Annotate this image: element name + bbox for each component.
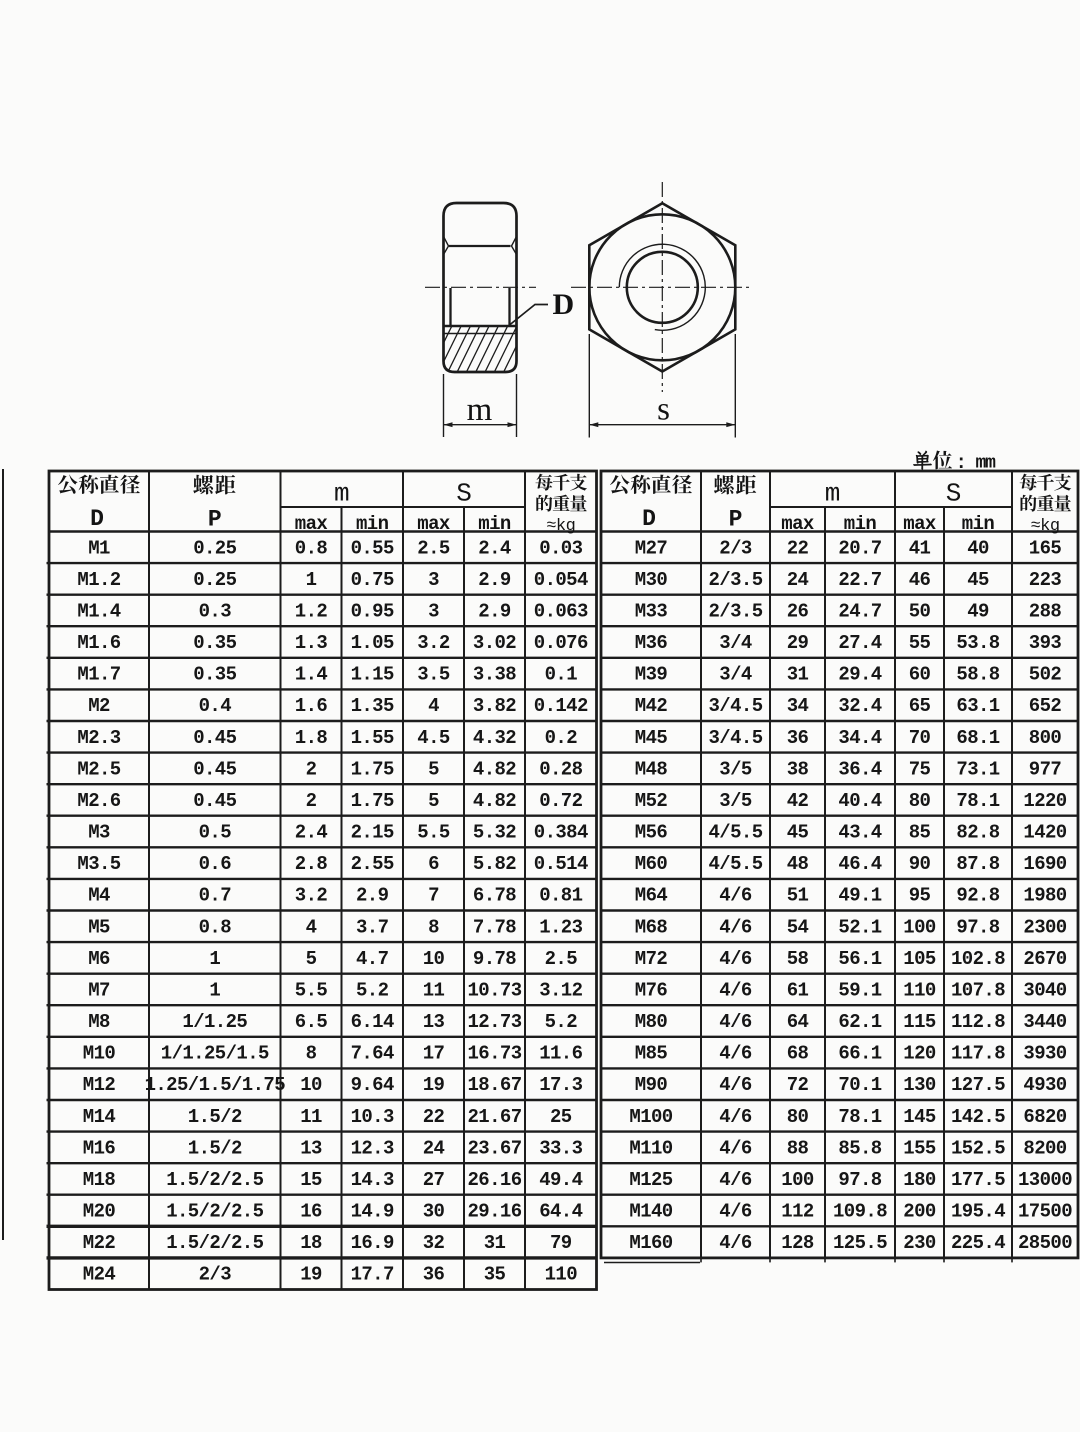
svg-text:35: 35 xyxy=(484,1264,506,1286)
svg-text:200: 200 xyxy=(903,1201,936,1223)
svg-text:8: 8 xyxy=(306,1043,317,1065)
svg-text:17.7: 17.7 xyxy=(351,1264,394,1286)
svg-text:49.4: 49.4 xyxy=(539,1169,582,1191)
svg-text:M39: M39 xyxy=(635,664,668,686)
svg-text:31: 31 xyxy=(787,664,809,686)
svg-text:46.4: 46.4 xyxy=(838,853,881,875)
svg-text:M110: M110 xyxy=(629,1137,672,1159)
svg-text:3/4.5: 3/4.5 xyxy=(708,727,762,749)
svg-text:M52: M52 xyxy=(635,790,668,812)
svg-text:0.35: 0.35 xyxy=(193,664,236,686)
svg-text:4/6: 4/6 xyxy=(719,916,752,938)
svg-text:223: 223 xyxy=(1029,569,1062,591)
svg-text:4/6: 4/6 xyxy=(719,885,752,907)
svg-text:0.2: 0.2 xyxy=(545,727,578,749)
svg-text:M60: M60 xyxy=(635,853,668,875)
svg-text:2.5: 2.5 xyxy=(545,948,578,970)
svg-text:10: 10 xyxy=(423,948,445,970)
svg-text:11.6: 11.6 xyxy=(539,1043,582,1065)
svg-text:5: 5 xyxy=(428,758,439,780)
svg-text:117.8: 117.8 xyxy=(951,1043,1005,1065)
svg-text:4.7: 4.7 xyxy=(356,948,389,970)
svg-text:13000: 13000 xyxy=(1018,1169,1072,1191)
svg-text:4.5: 4.5 xyxy=(417,727,450,749)
svg-text:1.35: 1.35 xyxy=(351,695,394,717)
svg-text:46: 46 xyxy=(909,569,931,591)
svg-text:66.1: 66.1 xyxy=(838,1043,881,1065)
svg-text:393: 393 xyxy=(1029,632,1062,654)
svg-text:max: max xyxy=(417,513,450,535)
svg-text:M10: M10 xyxy=(83,1043,116,1065)
svg-text:D: D xyxy=(642,506,656,532)
svg-text:288: 288 xyxy=(1029,601,1062,623)
svg-text:2.4: 2.4 xyxy=(295,822,328,844)
svg-text:43.4: 43.4 xyxy=(838,822,881,844)
svg-text:5.5: 5.5 xyxy=(295,980,328,1002)
svg-text:M85: M85 xyxy=(635,1043,668,1065)
svg-text:1: 1 xyxy=(209,980,220,1002)
svg-text:M125: M125 xyxy=(629,1169,672,1191)
svg-text:8: 8 xyxy=(428,916,439,938)
svg-text:49: 49 xyxy=(967,601,989,623)
svg-text:97.8: 97.8 xyxy=(838,1169,881,1191)
svg-text:45: 45 xyxy=(967,569,989,591)
svg-text:65: 65 xyxy=(909,695,931,717)
svg-text:109.8: 109.8 xyxy=(833,1201,887,1223)
svg-text:4930: 4930 xyxy=(1023,1074,1066,1096)
svg-text:S: S xyxy=(456,478,472,508)
svg-text:24: 24 xyxy=(787,569,809,591)
svg-text:90: 90 xyxy=(909,853,931,875)
svg-text:2/3.5: 2/3.5 xyxy=(708,601,762,623)
svg-text:120: 120 xyxy=(903,1043,936,1065)
svg-text:4.82: 4.82 xyxy=(473,758,516,780)
svg-text:M2.3: M2.3 xyxy=(77,727,120,749)
svg-text:M100: M100 xyxy=(629,1106,672,1128)
svg-text:2: 2 xyxy=(306,758,317,780)
svg-text:142.5: 142.5 xyxy=(951,1106,1005,1128)
svg-text:36: 36 xyxy=(787,727,809,749)
svg-text:s: s xyxy=(657,392,670,428)
svg-text:M36: M36 xyxy=(635,632,668,654)
svg-text:1.5/2: 1.5/2 xyxy=(188,1106,242,1128)
svg-text:D: D xyxy=(90,506,104,532)
svg-text:0.6: 0.6 xyxy=(199,853,232,875)
svg-text:16.73: 16.73 xyxy=(467,1043,521,1065)
svg-text:2/3.5: 2/3.5 xyxy=(708,569,762,591)
svg-text:1.05: 1.05 xyxy=(351,632,394,654)
svg-text:1/1.25/1.5: 1/1.25/1.5 xyxy=(161,1043,269,1065)
svg-text:145: 145 xyxy=(903,1106,936,1128)
svg-text:1.5/2: 1.5/2 xyxy=(188,1137,242,1159)
svg-text:17.3: 17.3 xyxy=(539,1074,582,1096)
svg-text:125.5: 125.5 xyxy=(833,1232,887,1254)
svg-text:64.4: 64.4 xyxy=(539,1201,582,1223)
svg-text:M64: M64 xyxy=(635,885,668,907)
svg-text:48: 48 xyxy=(787,853,809,875)
svg-text:22: 22 xyxy=(787,537,809,559)
svg-text:P: P xyxy=(208,507,222,533)
svg-text:11: 11 xyxy=(300,1106,322,1128)
svg-text:165: 165 xyxy=(1029,537,1062,559)
svg-text:min: min xyxy=(356,513,389,535)
svg-text:1.55: 1.55 xyxy=(351,727,394,749)
svg-text:10: 10 xyxy=(300,1074,322,1096)
svg-text:88: 88 xyxy=(787,1137,809,1159)
svg-text:1.15: 1.15 xyxy=(351,664,394,686)
svg-text:49.1: 49.1 xyxy=(838,885,881,907)
svg-text:2/3: 2/3 xyxy=(199,1264,232,1286)
svg-text:M22: M22 xyxy=(83,1232,116,1254)
svg-text:31: 31 xyxy=(484,1232,506,1254)
svg-text:21.67: 21.67 xyxy=(467,1106,521,1128)
svg-text:3.02: 3.02 xyxy=(473,632,516,654)
svg-text:M6: M6 xyxy=(88,948,110,970)
svg-text:D: D xyxy=(553,288,575,321)
svg-text:0.4: 0.4 xyxy=(199,695,232,717)
svg-text:85: 85 xyxy=(909,822,931,844)
svg-text:M33: M33 xyxy=(635,601,668,623)
svg-text:56.1: 56.1 xyxy=(838,948,881,970)
svg-text:102.8: 102.8 xyxy=(951,948,1005,970)
svg-text:max: max xyxy=(781,513,814,535)
svg-text:110: 110 xyxy=(903,980,936,1002)
svg-text:92.8: 92.8 xyxy=(956,885,999,907)
svg-text:M7: M7 xyxy=(88,980,110,1002)
svg-text:2.5: 2.5 xyxy=(417,537,450,559)
svg-text:68: 68 xyxy=(787,1043,809,1065)
svg-text:0.7: 0.7 xyxy=(199,885,232,907)
svg-text:M4: M4 xyxy=(88,885,110,907)
svg-text:115: 115 xyxy=(903,1011,936,1033)
svg-text:0.384: 0.384 xyxy=(534,822,588,844)
svg-text:0.75: 0.75 xyxy=(351,569,394,591)
svg-text:2.9: 2.9 xyxy=(478,601,511,623)
svg-text:25: 25 xyxy=(550,1106,572,1128)
svg-text:36.4: 36.4 xyxy=(838,758,881,780)
svg-text:0.95: 0.95 xyxy=(351,601,394,623)
svg-text:1.5/2/2.5: 1.5/2/2.5 xyxy=(166,1201,263,1223)
svg-text:M2.6: M2.6 xyxy=(77,790,120,812)
svg-text:1.75: 1.75 xyxy=(351,758,394,780)
svg-text:4: 4 xyxy=(428,695,439,717)
svg-text:0.3: 0.3 xyxy=(199,601,232,623)
svg-text:M14: M14 xyxy=(83,1106,116,1128)
svg-text:M30: M30 xyxy=(635,569,668,591)
svg-text:4: 4 xyxy=(306,916,317,938)
svg-text:75: 75 xyxy=(909,758,931,780)
svg-text:max: max xyxy=(903,513,936,535)
svg-text:54: 54 xyxy=(787,916,809,938)
svg-text:M16: M16 xyxy=(83,1137,116,1159)
svg-text:6.5: 6.5 xyxy=(295,1011,328,1033)
svg-text:1.25/1.5/1.75: 1.25/1.5/1.75 xyxy=(145,1074,286,1096)
svg-text:85.8: 85.8 xyxy=(838,1137,881,1159)
svg-text:min: min xyxy=(962,513,995,535)
svg-text:2/3: 2/3 xyxy=(719,537,752,559)
svg-text:≈kg: ≈kg xyxy=(546,517,575,536)
svg-text:13: 13 xyxy=(300,1137,322,1159)
svg-text:64: 64 xyxy=(787,1011,809,1033)
svg-text:min: min xyxy=(478,513,511,535)
svg-text:3930: 3930 xyxy=(1023,1043,1066,1065)
svg-text:M140: M140 xyxy=(629,1201,672,1223)
svg-text:177.5: 177.5 xyxy=(951,1169,1005,1191)
svg-text:40.4: 40.4 xyxy=(838,790,881,812)
svg-text:4/6: 4/6 xyxy=(719,980,752,1002)
svg-text:0.45: 0.45 xyxy=(193,790,236,812)
svg-text:58: 58 xyxy=(787,948,809,970)
svg-text:M18: M18 xyxy=(83,1169,116,1191)
svg-text:4/6: 4/6 xyxy=(719,1232,752,1254)
svg-text:3.5: 3.5 xyxy=(417,664,450,686)
svg-text:16: 16 xyxy=(300,1201,322,1223)
svg-text:0.8: 0.8 xyxy=(199,916,232,938)
svg-text:0.72: 0.72 xyxy=(539,790,582,812)
svg-text:1.6: 1.6 xyxy=(295,695,328,717)
svg-text:27: 27 xyxy=(423,1169,445,1191)
svg-text:4/6: 4/6 xyxy=(719,1074,752,1096)
svg-text:230: 230 xyxy=(903,1232,936,1254)
svg-text:195.4: 195.4 xyxy=(951,1201,1005,1223)
svg-text:M1.4: M1.4 xyxy=(77,601,120,623)
svg-text:0.45: 0.45 xyxy=(193,758,236,780)
svg-text:14.3: 14.3 xyxy=(351,1169,394,1191)
svg-text:m: m xyxy=(825,478,841,508)
svg-text:55: 55 xyxy=(909,632,931,654)
svg-text:5.82: 5.82 xyxy=(473,853,516,875)
svg-text:15: 15 xyxy=(300,1169,322,1191)
svg-text:17500: 17500 xyxy=(1018,1201,1072,1223)
svg-text:12.3: 12.3 xyxy=(351,1137,394,1159)
svg-text:3.2: 3.2 xyxy=(295,885,328,907)
svg-text:5: 5 xyxy=(306,948,317,970)
svg-text:M42: M42 xyxy=(635,695,668,717)
svg-text:78.1: 78.1 xyxy=(956,790,999,812)
svg-text:1/1.25: 1/1.25 xyxy=(182,1011,247,1033)
svg-text:S: S xyxy=(946,478,962,508)
svg-text:9.78: 9.78 xyxy=(473,948,516,970)
svg-text:34: 34 xyxy=(787,695,809,717)
svg-text:30: 30 xyxy=(423,1201,445,1223)
svg-text:52.1: 52.1 xyxy=(838,916,881,938)
svg-text:1.3: 1.3 xyxy=(295,632,328,654)
svg-text:24: 24 xyxy=(423,1137,445,1159)
svg-text:3.7: 3.7 xyxy=(356,916,389,938)
svg-text:M8: M8 xyxy=(88,1011,110,1033)
svg-text:14.9: 14.9 xyxy=(351,1201,394,1223)
svg-text:32.4: 32.4 xyxy=(838,695,881,717)
svg-text:1: 1 xyxy=(306,569,317,591)
svg-text:0.25: 0.25 xyxy=(193,569,236,591)
svg-text:M90: M90 xyxy=(635,1074,668,1096)
svg-text:20.7: 20.7 xyxy=(838,537,881,559)
svg-text:2.4: 2.4 xyxy=(478,537,511,559)
svg-text:59.1: 59.1 xyxy=(838,980,881,1002)
svg-text:1220: 1220 xyxy=(1023,790,1066,812)
svg-text:50: 50 xyxy=(909,601,931,623)
svg-text:1.5/2/2.5: 1.5/2/2.5 xyxy=(166,1232,263,1254)
svg-text:3.82: 3.82 xyxy=(473,695,516,717)
svg-text:82.8: 82.8 xyxy=(956,822,999,844)
svg-text:0.076: 0.076 xyxy=(534,632,588,654)
svg-text:53.8: 53.8 xyxy=(956,632,999,654)
svg-text:M12: M12 xyxy=(83,1074,116,1096)
svg-text:38: 38 xyxy=(787,758,809,780)
svg-text:3440: 3440 xyxy=(1023,1011,1066,1033)
svg-text:3: 3 xyxy=(428,601,439,623)
svg-text:12.73: 12.73 xyxy=(467,1011,521,1033)
svg-text:26.16: 26.16 xyxy=(467,1169,521,1191)
svg-text:5.2: 5.2 xyxy=(545,1011,578,1033)
svg-text:63.1: 63.1 xyxy=(956,695,999,717)
svg-text:36: 36 xyxy=(423,1264,445,1286)
svg-text:max: max xyxy=(295,513,328,535)
svg-text:18: 18 xyxy=(300,1232,322,1254)
svg-text:M160: M160 xyxy=(629,1232,672,1254)
svg-text:51: 51 xyxy=(787,885,809,907)
svg-text:0.35: 0.35 xyxy=(193,632,236,654)
svg-text:M56: M56 xyxy=(635,822,668,844)
svg-text:m: m xyxy=(467,392,493,428)
svg-text:M27: M27 xyxy=(635,537,668,559)
svg-text:80: 80 xyxy=(787,1106,809,1128)
svg-text:≈kg: ≈kg xyxy=(1030,517,1059,536)
svg-text:2.9: 2.9 xyxy=(356,885,389,907)
svg-text:29.16: 29.16 xyxy=(467,1201,521,1223)
svg-text:1.23: 1.23 xyxy=(539,916,582,938)
svg-text:1.2: 1.2 xyxy=(295,601,328,623)
svg-text:40: 40 xyxy=(967,537,989,559)
svg-text:M20: M20 xyxy=(83,1201,116,1223)
svg-text:6.14: 6.14 xyxy=(351,1011,394,1033)
svg-text:4.32: 4.32 xyxy=(473,727,516,749)
svg-text:0.1: 0.1 xyxy=(545,664,578,686)
svg-text:1.5/2/2.5: 1.5/2/2.5 xyxy=(166,1169,263,1191)
svg-text:7.64: 7.64 xyxy=(351,1043,394,1065)
svg-text:2.8: 2.8 xyxy=(295,853,328,875)
svg-text:130: 130 xyxy=(903,1074,936,1096)
svg-text:29: 29 xyxy=(787,632,809,654)
svg-text:79: 79 xyxy=(550,1232,572,1254)
svg-text:502: 502 xyxy=(1029,664,1062,686)
svg-text:4.82: 4.82 xyxy=(473,790,516,812)
svg-text:800: 800 xyxy=(1029,727,1062,749)
svg-text:155: 155 xyxy=(903,1137,936,1159)
svg-text:6820: 6820 xyxy=(1023,1106,1066,1128)
svg-text:41: 41 xyxy=(909,537,931,559)
svg-text:19: 19 xyxy=(423,1074,445,1096)
svg-text:M5: M5 xyxy=(88,916,110,938)
svg-text:M3.5: M3.5 xyxy=(77,853,120,875)
svg-text:61: 61 xyxy=(787,980,809,1002)
svg-text:M2.5: M2.5 xyxy=(77,758,120,780)
svg-text:0.063: 0.063 xyxy=(534,601,588,623)
svg-text:1980: 1980 xyxy=(1023,885,1066,907)
svg-text:0.25: 0.25 xyxy=(193,537,236,559)
svg-text:33.3: 33.3 xyxy=(539,1137,582,1159)
svg-text:652: 652 xyxy=(1029,695,1062,717)
svg-text:8200: 8200 xyxy=(1023,1137,1066,1159)
svg-text:60: 60 xyxy=(909,664,931,686)
svg-text:5.5: 5.5 xyxy=(417,822,450,844)
svg-text:1420: 1420 xyxy=(1023,822,1066,844)
svg-text:100: 100 xyxy=(781,1169,814,1191)
svg-text:0.81: 0.81 xyxy=(539,885,582,907)
svg-text:128: 128 xyxy=(781,1232,814,1254)
svg-text:3.12: 3.12 xyxy=(539,980,582,1002)
svg-text:0.514: 0.514 xyxy=(534,853,588,875)
svg-text:62.1: 62.1 xyxy=(838,1011,881,1033)
svg-text:M80: M80 xyxy=(635,1011,668,1033)
svg-text:3.38: 3.38 xyxy=(473,664,516,686)
svg-text:M1: M1 xyxy=(88,537,110,559)
svg-text:10.3: 10.3 xyxy=(351,1106,394,1128)
svg-text:22: 22 xyxy=(423,1106,445,1128)
svg-text:112: 112 xyxy=(781,1201,814,1223)
svg-text:0.5: 0.5 xyxy=(199,822,232,844)
svg-text:M76: M76 xyxy=(635,980,668,1002)
svg-text:M24: M24 xyxy=(83,1264,116,1286)
svg-text:13: 13 xyxy=(423,1011,445,1033)
svg-text:70.1: 70.1 xyxy=(838,1074,881,1096)
svg-text:3/4.5: 3/4.5 xyxy=(708,695,762,717)
svg-text:16.9: 16.9 xyxy=(351,1232,394,1254)
svg-text:7: 7 xyxy=(428,885,439,907)
svg-text:180: 180 xyxy=(903,1169,936,1191)
svg-text:1690: 1690 xyxy=(1023,853,1066,875)
svg-text:2300: 2300 xyxy=(1023,916,1066,938)
svg-text:32: 32 xyxy=(423,1232,445,1254)
svg-text:18.67: 18.67 xyxy=(467,1074,521,1096)
svg-text:M45: M45 xyxy=(635,727,668,749)
svg-text:78.1: 78.1 xyxy=(838,1106,881,1128)
svg-text:72: 72 xyxy=(787,1074,809,1096)
svg-text:2670: 2670 xyxy=(1023,948,1066,970)
svg-text:0.8: 0.8 xyxy=(295,537,328,559)
svg-text:M68: M68 xyxy=(635,916,668,938)
svg-text:4/6: 4/6 xyxy=(719,1137,752,1159)
svg-text:112.8: 112.8 xyxy=(951,1011,1005,1033)
svg-text:2.55: 2.55 xyxy=(351,853,394,875)
svg-text:29.4: 29.4 xyxy=(838,664,881,686)
svg-text:3/5: 3/5 xyxy=(719,758,752,780)
svg-text:2: 2 xyxy=(306,790,317,812)
svg-text:4/5.5: 4/5.5 xyxy=(708,853,762,875)
svg-text:42: 42 xyxy=(787,790,809,812)
svg-text:28500: 28500 xyxy=(1018,1232,1072,1254)
svg-text:26: 26 xyxy=(787,601,809,623)
svg-text:17: 17 xyxy=(423,1043,445,1065)
svg-text:225.4: 225.4 xyxy=(951,1232,1005,1254)
svg-text:4/6: 4/6 xyxy=(719,1106,752,1128)
svg-text:3/5: 3/5 xyxy=(719,790,752,812)
svg-text:87.8: 87.8 xyxy=(956,853,999,875)
svg-text:M48: M48 xyxy=(635,758,668,780)
svg-text:3: 3 xyxy=(428,569,439,591)
svg-text:P: P xyxy=(729,507,743,533)
svg-text:97.8: 97.8 xyxy=(956,916,999,938)
svg-text:22.7: 22.7 xyxy=(838,569,881,591)
svg-text:107.8: 107.8 xyxy=(951,980,1005,1002)
svg-text:0.054: 0.054 xyxy=(534,569,588,591)
svg-text:4/6: 4/6 xyxy=(719,1011,752,1033)
svg-text:0.142: 0.142 xyxy=(534,695,588,717)
svg-text:10.73: 10.73 xyxy=(467,980,521,1002)
svg-text:7.78: 7.78 xyxy=(473,916,516,938)
svg-text:0.55: 0.55 xyxy=(351,537,394,559)
svg-text:27.4: 27.4 xyxy=(838,632,881,654)
